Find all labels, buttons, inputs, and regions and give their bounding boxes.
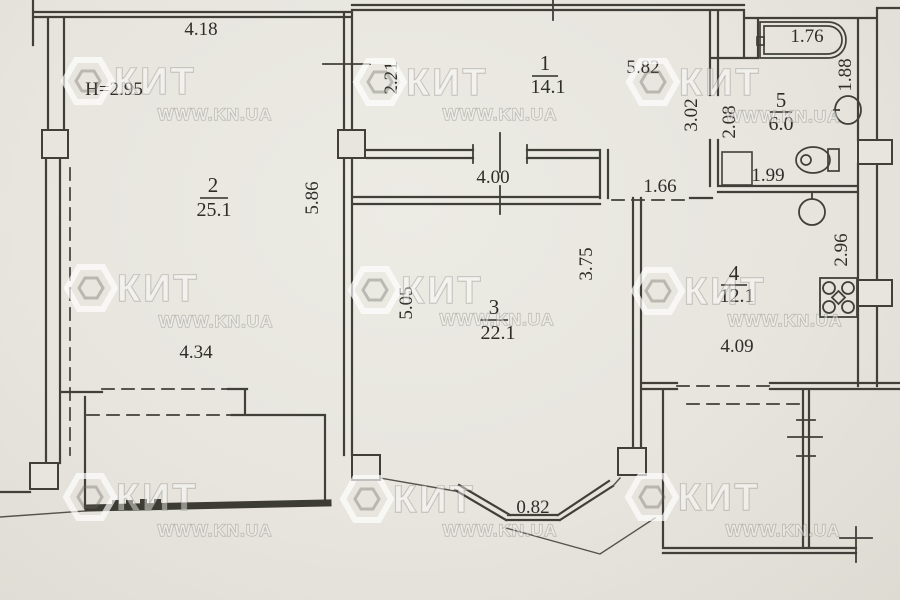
dim-kitchen-right: 2.96 bbox=[831, 233, 852, 266]
watermark-url: WWW.KN.UA bbox=[159, 312, 274, 331]
dim-room2-bottom: 4.34 bbox=[179, 342, 213, 363]
watermark-url: WWW.KN.UA bbox=[726, 521, 841, 540]
room-2-area: 25.1 bbox=[197, 199, 232, 221]
wall-pillar bbox=[30, 463, 58, 489]
dim-bath-bottom: 1.99 bbox=[751, 165, 784, 186]
floorplan-page: 4.18 H=2.95 4.34 5.86 2.21 5.82 4.00 1.6… bbox=[0, 0, 900, 600]
dim-bath-right: 1.88 bbox=[835, 58, 856, 91]
watermark: КИТ WWW.KN.UA bbox=[629, 61, 840, 126]
dim-kitchen-door: 1.66 bbox=[643, 176, 676, 197]
dim-room2-top: 4.18 bbox=[184, 19, 217, 40]
watermark-brand: КИТ bbox=[679, 62, 762, 104]
watermark-url: WWW.KN.UA bbox=[443, 105, 558, 124]
room-2-label: 2 25.1 bbox=[197, 173, 232, 221]
kitchen-sink-icon bbox=[799, 192, 825, 225]
watermark-brand: КИТ bbox=[117, 268, 200, 310]
dim-bay-window: 0.82 bbox=[516, 497, 549, 518]
watermark-brand: КИТ bbox=[114, 61, 197, 103]
watermark-brand: КИТ bbox=[401, 270, 484, 312]
room-1-area: 14.1 bbox=[531, 76, 566, 98]
kit-logo-icon bbox=[628, 476, 676, 518]
duct-shaft bbox=[722, 152, 752, 185]
watermark-url: WWW.KN.UA bbox=[728, 311, 843, 330]
wall-pillar bbox=[618, 448, 646, 475]
watermark-url: WWW.KN.UA bbox=[158, 521, 273, 540]
dim-kitchen-bottom: 4.09 bbox=[720, 336, 753, 357]
wall-pillar bbox=[338, 130, 365, 158]
wall-pillar bbox=[42, 130, 68, 158]
watermark-url: WWW.KN.UA bbox=[726, 107, 841, 126]
dim-room2-right: 5.86 bbox=[302, 181, 323, 214]
floorplan-drawing: 4.18 H=2.95 4.34 5.86 2.21 5.82 4.00 1.6… bbox=[0, 0, 900, 600]
dim-room3-right: 3.75 bbox=[576, 247, 597, 280]
kit-logo-icon bbox=[343, 478, 391, 520]
watermark-url: WWW.KN.UA bbox=[158, 105, 273, 124]
watermark: КИТ WWW.KN.UA bbox=[634, 270, 842, 330]
dim-bathtub-length: 1.76 bbox=[790, 26, 823, 47]
room-2-number: 2 bbox=[208, 173, 219, 197]
watermark-brand: КИТ bbox=[684, 271, 767, 313]
wall-pillar bbox=[858, 280, 892, 306]
toilet-icon bbox=[796, 147, 839, 173]
watermark: КИТ WWW.KN.UA bbox=[351, 269, 554, 329]
room-1-label: 1 14.1 bbox=[531, 51, 566, 98]
watermark-brand: КИТ bbox=[393, 479, 476, 521]
wall-pillar bbox=[858, 140, 892, 164]
dim-corridor-width: 4.00 bbox=[476, 167, 509, 188]
watermark: КИТ WWW.KN.UA bbox=[67, 267, 273, 331]
watermark-brand: КИТ bbox=[678, 477, 761, 519]
watermark-url: WWW.KN.UA bbox=[443, 521, 558, 540]
watermark-brand: КИТ bbox=[406, 62, 489, 104]
kit-logo-icon bbox=[67, 267, 115, 309]
room-1-number: 1 bbox=[540, 51, 551, 75]
watermark-brand: КИТ bbox=[116, 477, 199, 519]
kit-logo-icon bbox=[351, 269, 399, 311]
watermark-url: WWW.KN.UA bbox=[440, 310, 555, 329]
kit-logo-icon bbox=[66, 476, 114, 518]
